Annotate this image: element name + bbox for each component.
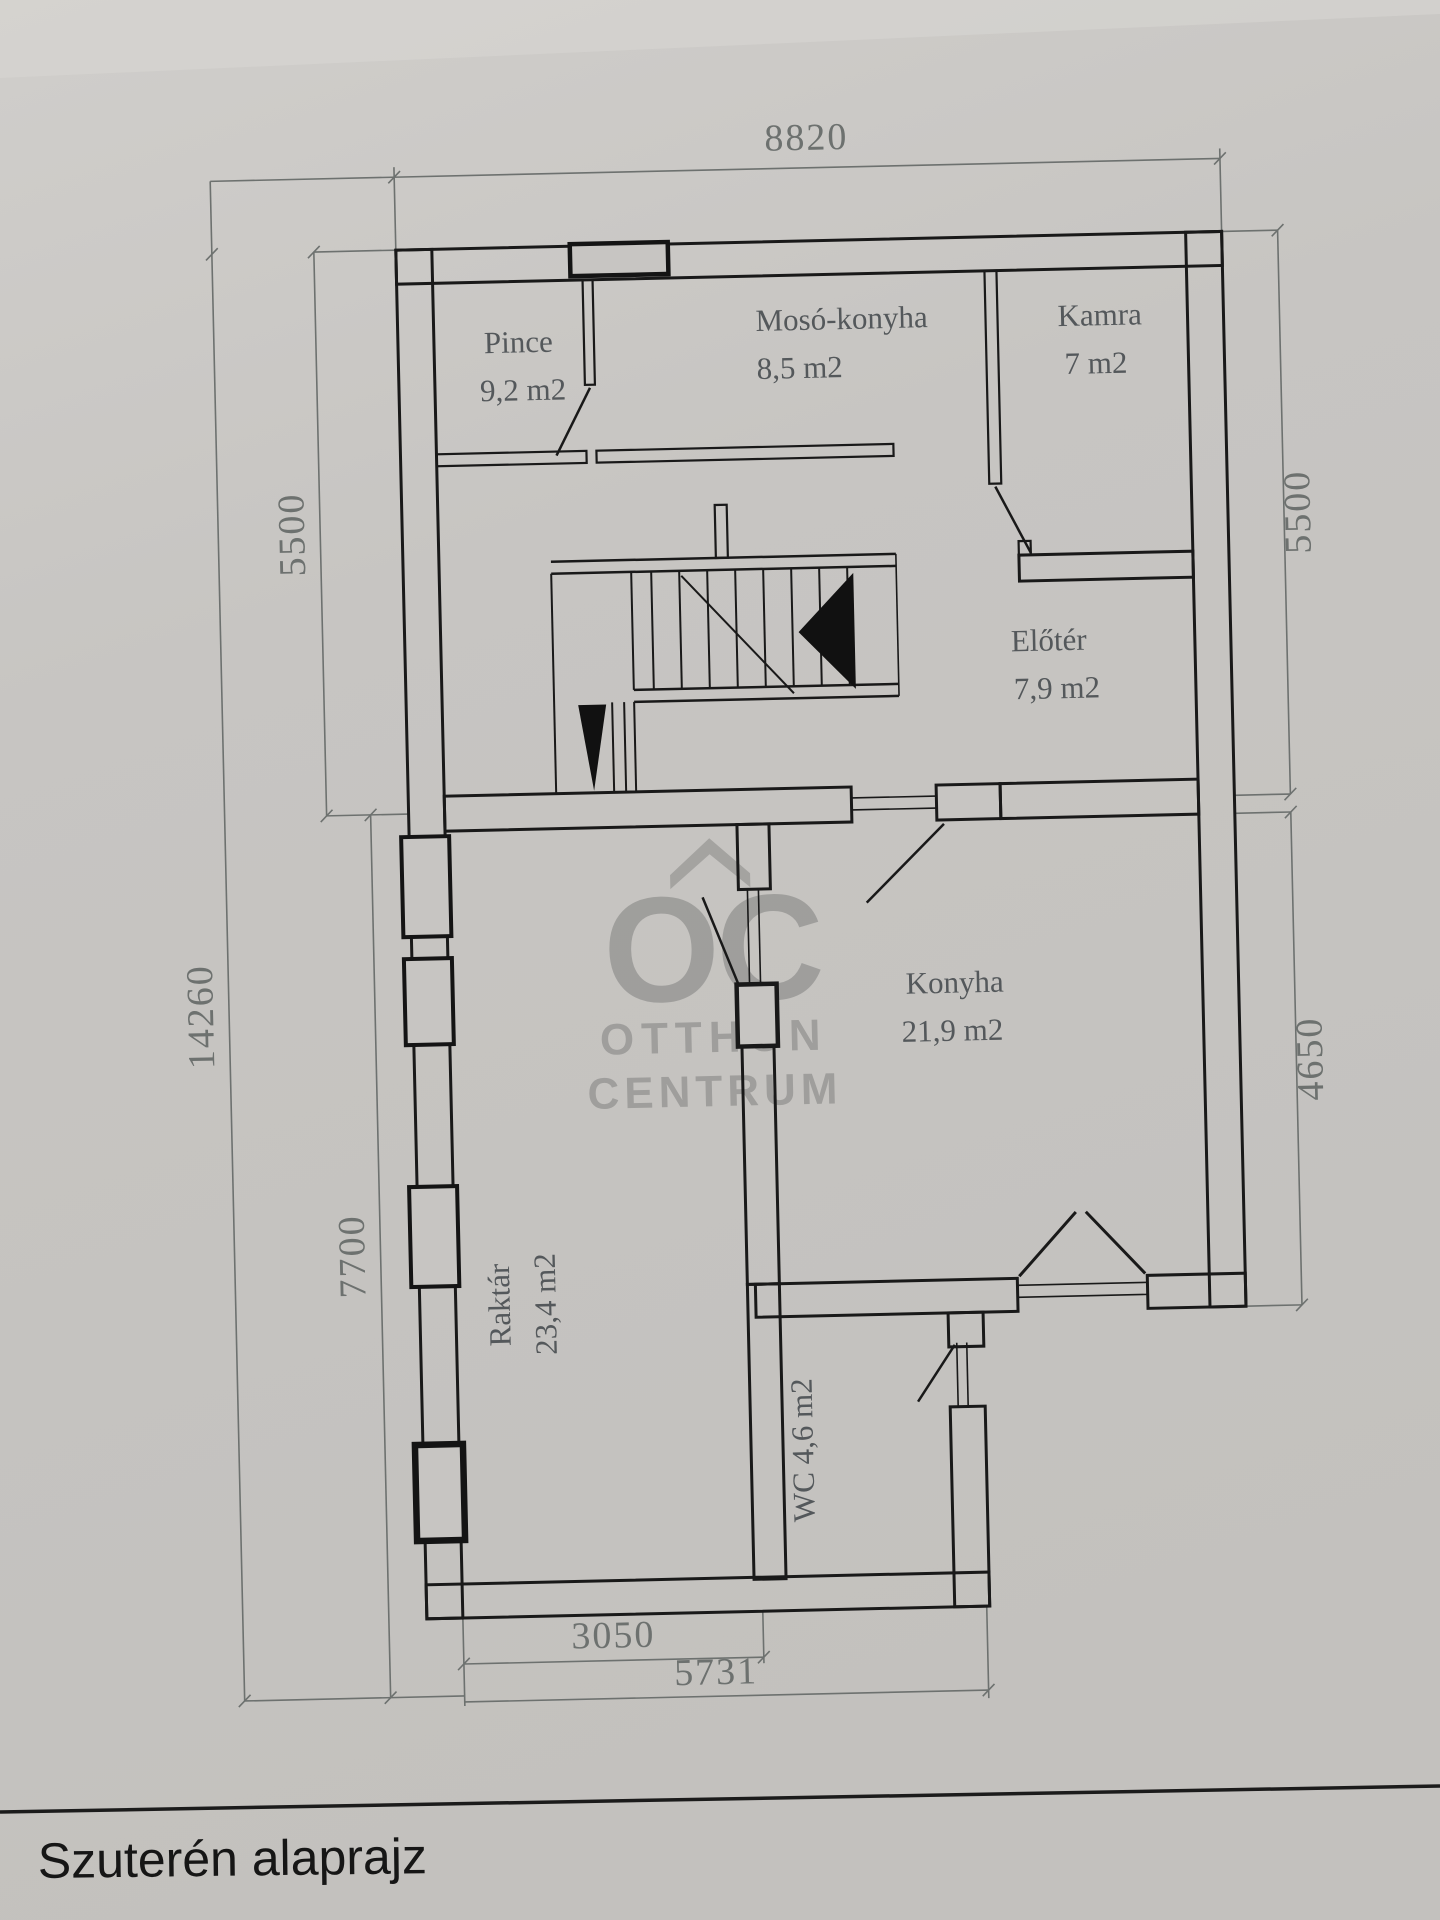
room-label-konyha: Konyha <box>905 964 1004 1001</box>
scanned-floorplan-page: OC OTTHON CENTRUM <box>0 0 1440 1920</box>
watermark-logo: OC <box>601 862 822 1035</box>
window-left-4-icon <box>415 1444 465 1541</box>
window-top-icon <box>570 242 669 276</box>
room-label-pince: Pince <box>484 324 554 361</box>
floorplan-drawing: OC OTTHON CENTRUM <box>0 0 1440 1920</box>
room-area-konyha: 21,9 m2 <box>901 1012 1003 1049</box>
room-area-moso-konyha: 8,5 m2 <box>756 349 843 386</box>
room-area-kamra: 7 m2 <box>1064 345 1128 381</box>
dim-top: 8820 <box>764 116 849 160</box>
room-area-raktar: 23,4 m2 <box>527 1253 564 1355</box>
dim-right-lower: 4650 <box>1288 1016 1332 1101</box>
room-area-pince: 9,2 m2 <box>480 371 567 408</box>
dim-right-upper: 5500 <box>1276 469 1320 554</box>
watermark-line1: OTTHON <box>599 1011 828 1065</box>
room-area-eloter: 7,9 m2 <box>1014 669 1101 706</box>
window-left-2-icon <box>404 958 454 1045</box>
dim-left-lower: 7700 <box>331 1214 375 1299</box>
room-label-wc: WC 4,6 m2 <box>784 1378 822 1523</box>
room-label-raktar: Raktár <box>481 1263 518 1347</box>
dim-left-total: 14260 <box>179 964 223 1070</box>
room-label-eloter: Előtér <box>1010 622 1087 659</box>
otthon-centrum-watermark: OC OTTHON CENTRUM <box>582 835 843 1119</box>
dim-left-upper: 5500 <box>270 492 314 577</box>
watermark-line2: CENTRUM <box>587 1064 843 1119</box>
dim-bottom-total: 5731 <box>674 1650 759 1694</box>
dim-bottom-inner: 3050 <box>571 1614 656 1658</box>
room-label-moso-konyha: Mosó-konyha <box>755 299 928 338</box>
window-left-1-icon <box>401 836 451 937</box>
page-title: Szuterén alaprajz <box>37 1828 427 1889</box>
room-label-kamra: Kamra <box>1057 296 1142 333</box>
window-left-3-icon <box>409 1186 459 1287</box>
